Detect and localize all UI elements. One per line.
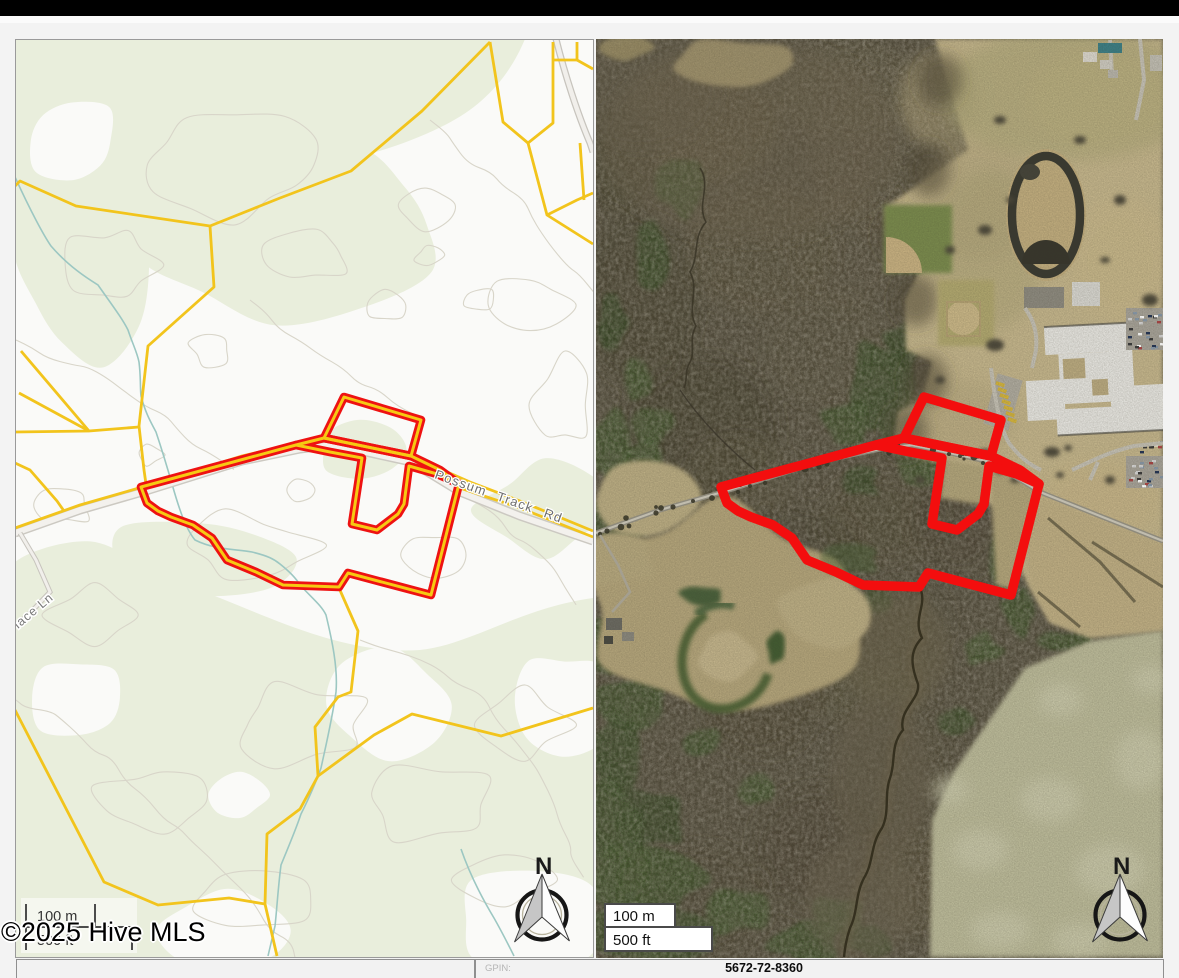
svg-text:100 m: 100 m xyxy=(613,908,655,925)
svg-text:N: N xyxy=(1113,853,1130,880)
svg-text:N: N xyxy=(535,853,552,880)
svg-text:500 ft: 500 ft xyxy=(613,932,651,949)
